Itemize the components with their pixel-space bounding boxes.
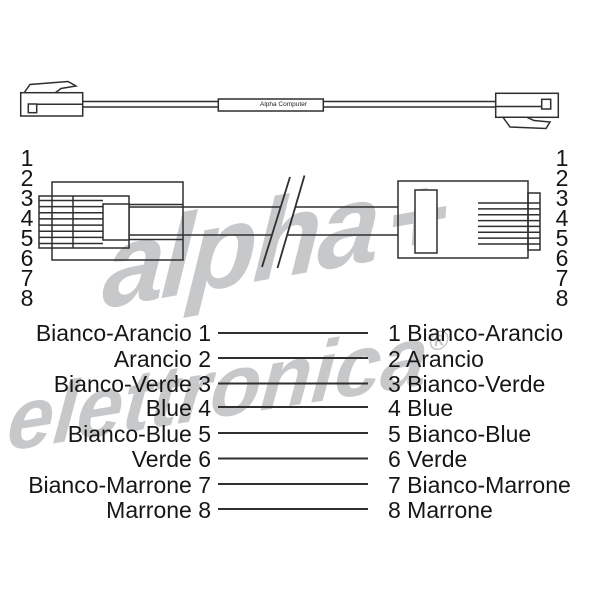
wire-label-left-5: Bianco-Blue 5: [0, 421, 211, 447]
right-connector-view: [398, 181, 540, 258]
wire-label-left-8: Marrone 8: [0, 497, 211, 523]
wire-label-right-6: 6 Verde: [388, 446, 600, 472]
wire-label-right-7: 7 Bianco-Marrone: [388, 472, 600, 498]
left-plug-clip: [24, 82, 76, 94]
wire-label-right-8: 8 Marrone: [388, 497, 600, 523]
right-connector-pin-contacts: [478, 203, 540, 244]
cable-run: [129, 176, 398, 269]
right-connector-plug: [528, 193, 540, 250]
cable-break-icon: [262, 176, 305, 269]
left-connector-cable-entry: [103, 204, 129, 240]
right-connector-cable-entry: [415, 190, 437, 253]
cable-brand-label: Alpha Computer: [218, 99, 323, 111]
wire-label-left-2: Arancio 2: [0, 346, 211, 372]
wire-label-left-1: Bianco-Arancio 1: [0, 320, 211, 346]
right-plug-body: [496, 93, 559, 117]
wire-label-right-1: 1 Bianco-Arancio: [388, 320, 600, 346]
wire-label-left-4: Blue 4: [0, 395, 211, 421]
wire-label-left-6: Verde 6: [0, 446, 211, 472]
wire-label-right-4: 4 Blue: [388, 395, 600, 421]
wiring-connection-lines: [218, 333, 368, 509]
pin-number-left-8: 8: [13, 286, 41, 310]
left-connector-view: [39, 182, 183, 260]
pin-number-right-8: 8: [548, 286, 576, 310]
left-connector-pin-contacts: [39, 201, 103, 244]
rj45-cable-wiring-diagram: alpha+ elettronica®: [0, 0, 600, 600]
right-plug-clip: [503, 117, 550, 128]
wire-label-left-3: Bianco-Verde 3: [0, 371, 211, 397]
wire-label-right-2: 2 Arancio: [388, 346, 600, 372]
wire-label-right-3: 3 Bianco-Verde: [388, 371, 600, 397]
wire-label-right-5: 5 Bianco-Blue: [388, 421, 600, 447]
wire-label-left-7: Bianco-Marrone 7: [0, 472, 211, 498]
